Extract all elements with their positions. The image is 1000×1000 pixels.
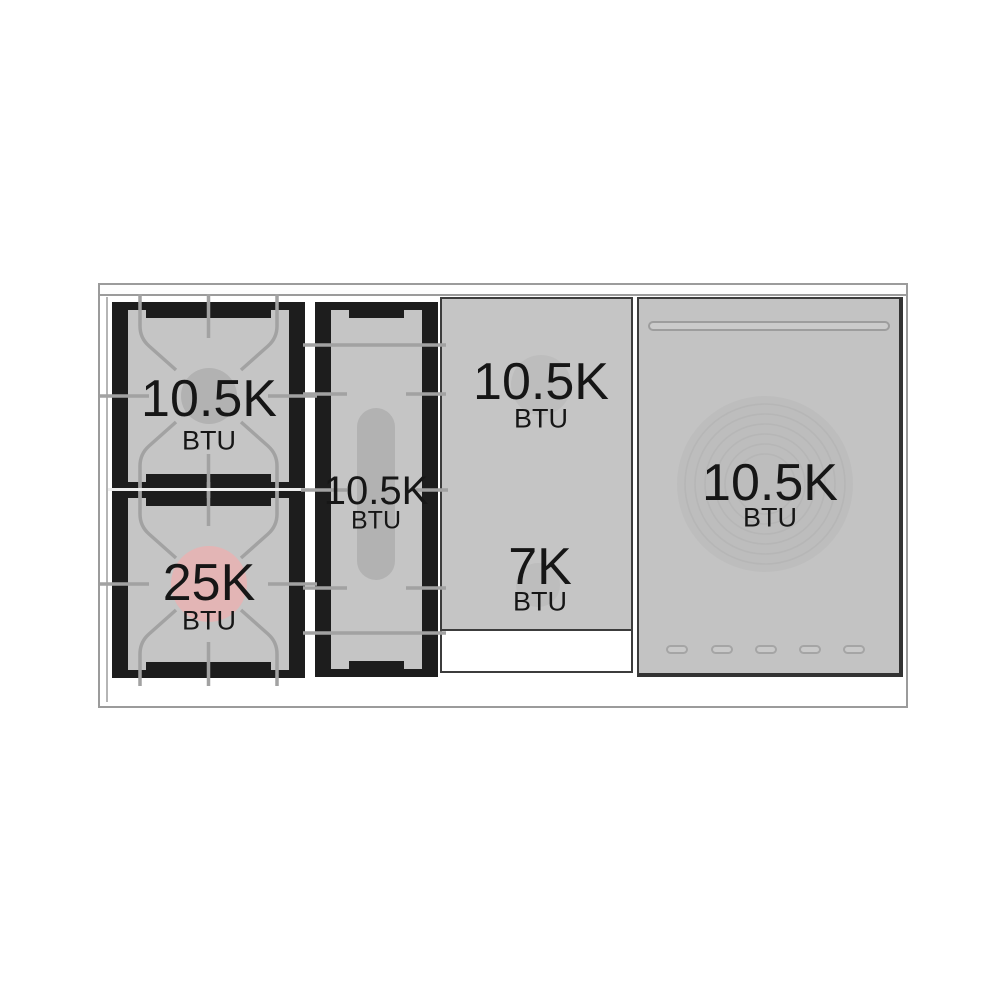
- knob-icon: [755, 645, 777, 654]
- burner-btu-value: 7K: [508, 541, 572, 593]
- griddle-module: 10.5K BTU: [315, 302, 438, 677]
- burner-btu-unit: BTU: [182, 608, 236, 635]
- knob-icon: [666, 645, 688, 654]
- knob-icon: [711, 645, 733, 654]
- burner-divider-line: [108, 488, 309, 491]
- burner-btu-unit: BTU: [182, 428, 236, 455]
- burner-btu-value: 10.5K: [141, 373, 277, 425]
- control-strip: [442, 629, 631, 671]
- heat-zone-btu-unit: BTU: [743, 505, 797, 532]
- knob-icon: [843, 645, 865, 654]
- burner-module-left: 10.5K BTU 25K BTU: [112, 302, 305, 678]
- handle-bar: [648, 321, 890, 331]
- heat-zone-btu-value: 10.5K: [702, 457, 838, 509]
- griddle-btu-unit: BTU: [351, 509, 401, 534]
- burner-btu-value: 10.5K: [473, 356, 609, 408]
- center-burner-panel: 10.5K BTU 7K BTU: [440, 297, 633, 673]
- burner-btu-value: 25K: [163, 557, 256, 609]
- cooktop-diagram: 10.5K BTU 25K BTU 10.5K BTU 10.5K BTU 7K: [0, 0, 1000, 1000]
- griddle-btu-value: 10.5K: [324, 471, 429, 511]
- backsplash-bar: [98, 283, 908, 296]
- knob-icon: [799, 645, 821, 654]
- cooktop-left-edge-line: [106, 297, 108, 702]
- burner-btu-unit: BTU: [514, 406, 568, 433]
- heat-zone-panel: 10.5K BTU: [637, 297, 903, 677]
- burner-btu-unit: BTU: [513, 589, 567, 616]
